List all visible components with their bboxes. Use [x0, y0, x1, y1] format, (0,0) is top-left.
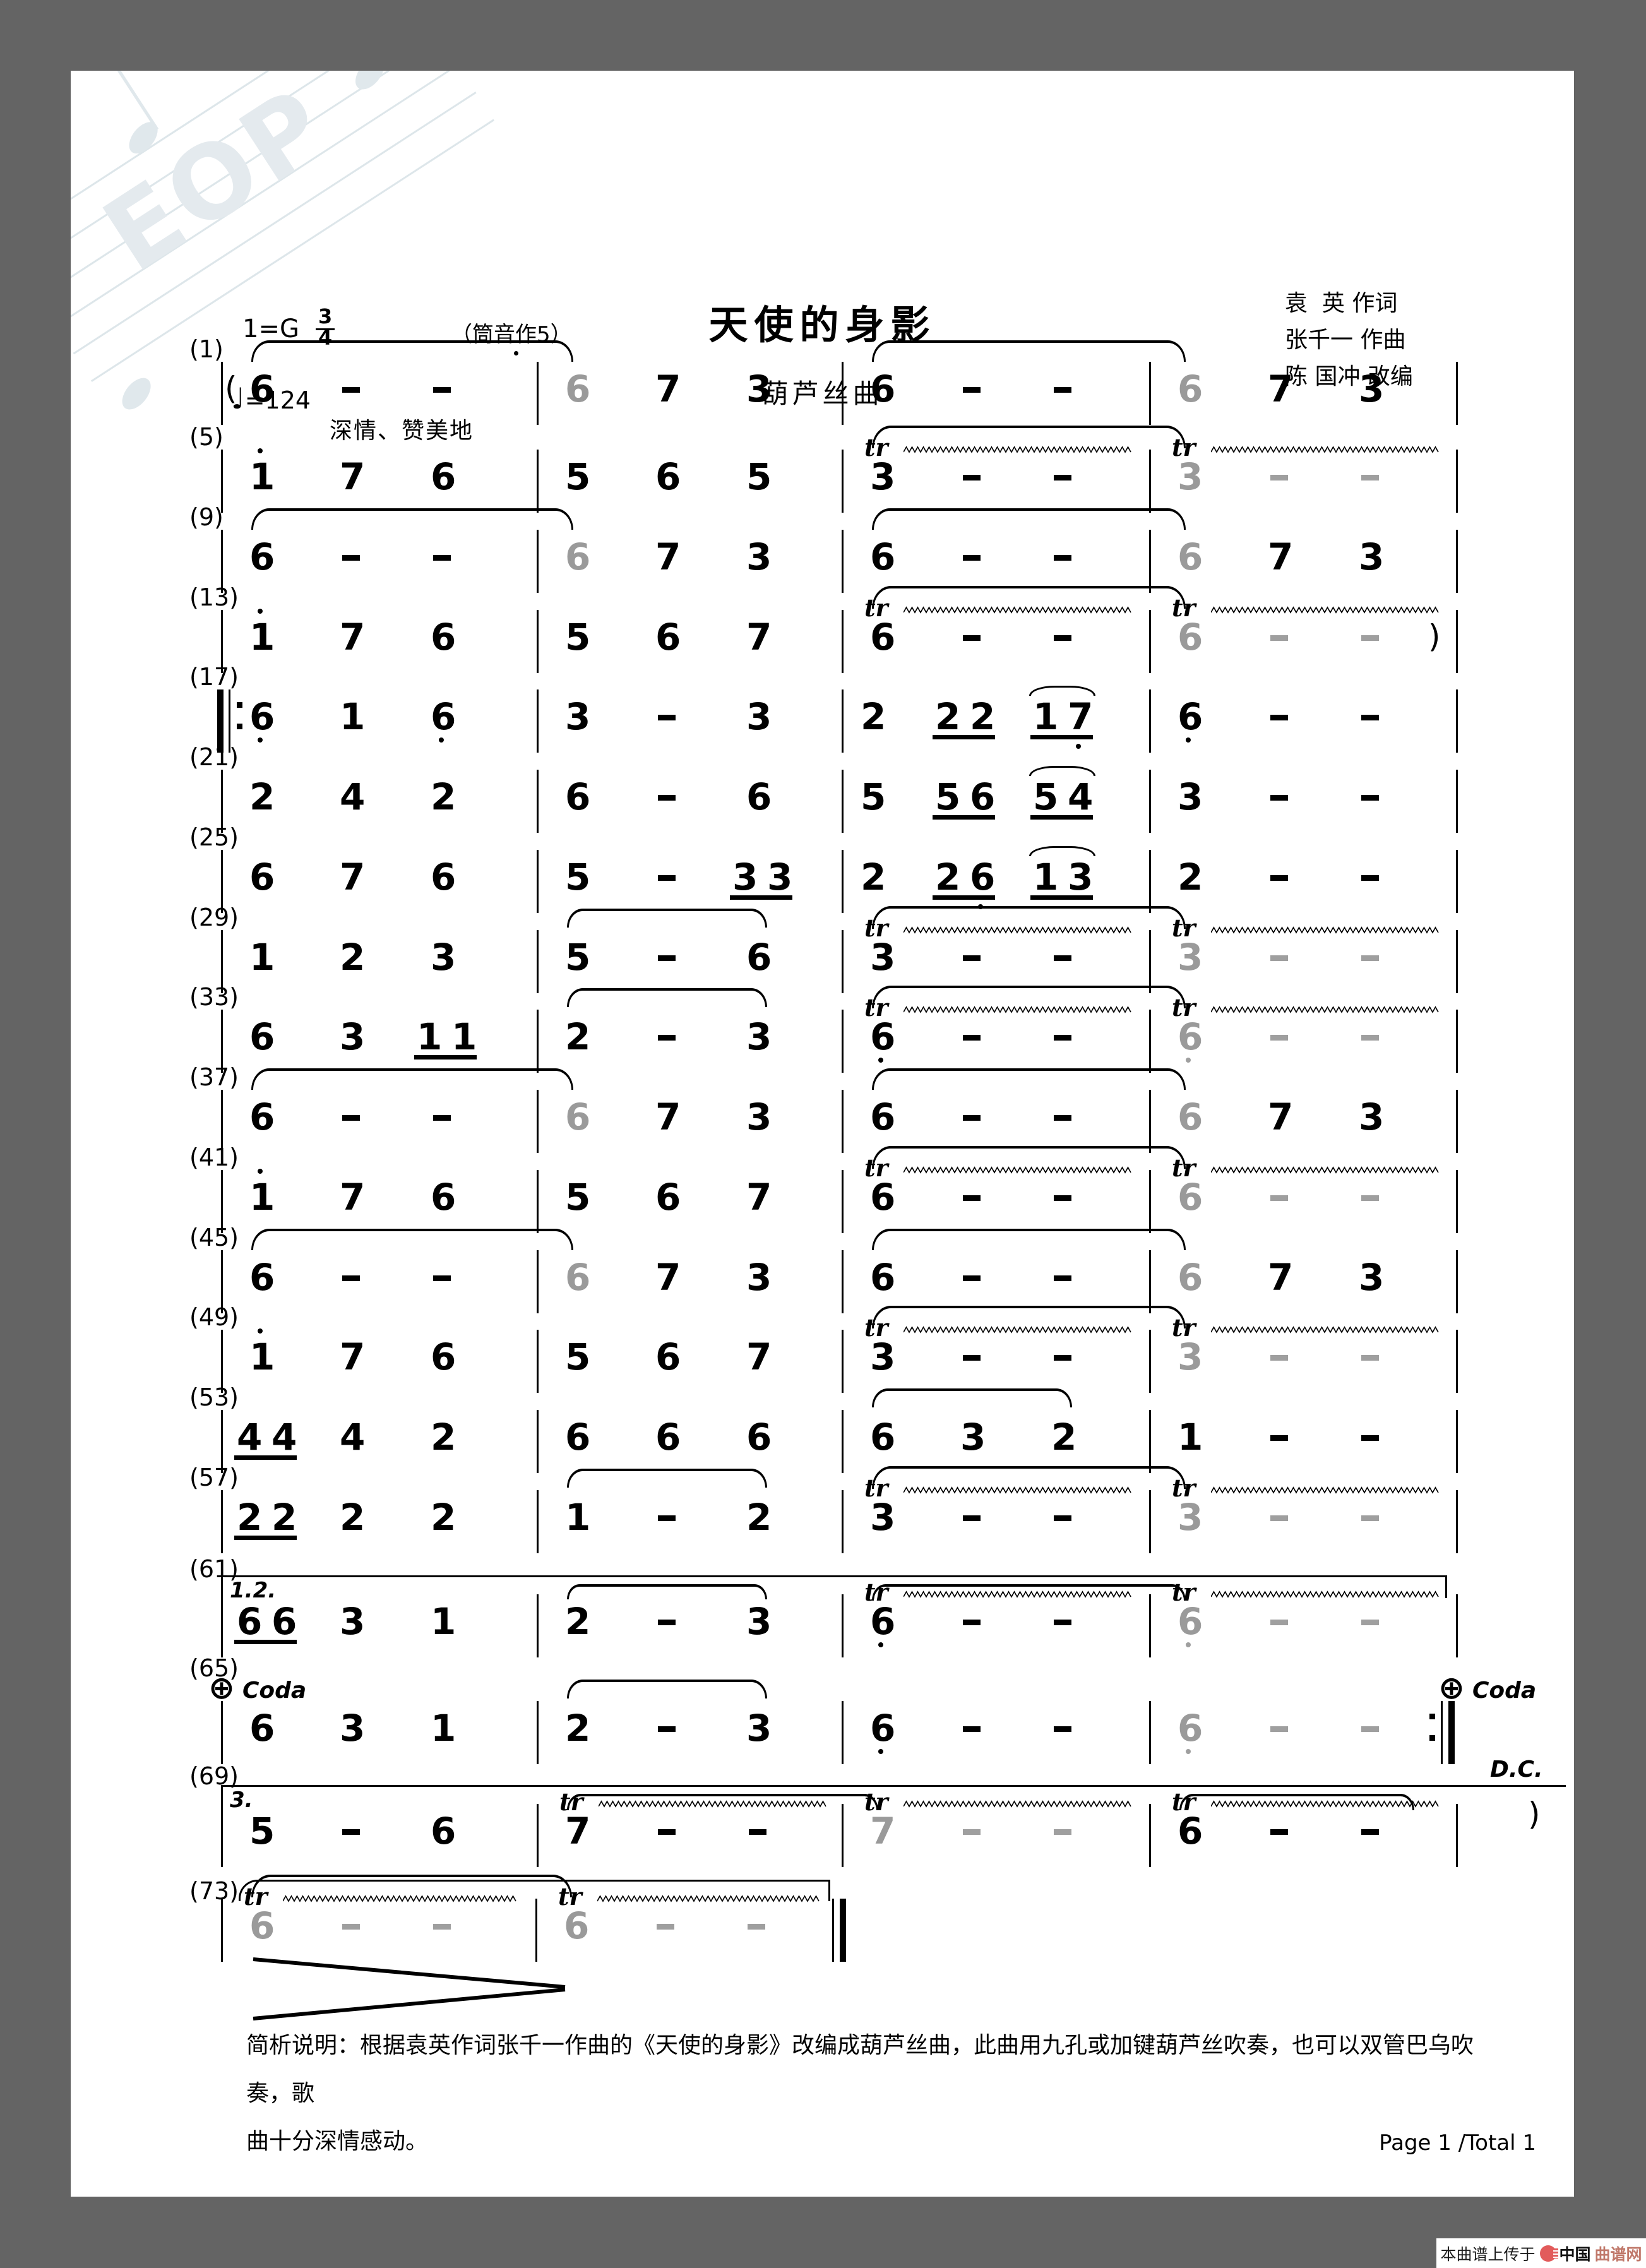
note: 6	[431, 619, 456, 655]
dash-rest	[963, 1275, 981, 1281]
volta-tick-right	[1445, 1575, 1447, 1598]
note: 6	[746, 779, 772, 815]
octave-dot-low	[878, 1058, 883, 1063]
measure-number-label: (49)	[189, 1303, 239, 1331]
note: 2	[1051, 1419, 1076, 1455]
note: 6	[655, 1339, 681, 1375]
dash-rest	[963, 1829, 981, 1835]
barline	[1456, 1010, 1458, 1073]
note: 3	[732, 859, 758, 895]
note: 7	[655, 371, 681, 407]
note: 2	[249, 779, 275, 815]
note: 6	[431, 1339, 456, 1375]
barline	[842, 1090, 844, 1153]
barline	[1456, 850, 1458, 913]
note: 7	[746, 619, 772, 655]
note: 6	[1178, 1099, 1203, 1135]
barline	[221, 1490, 223, 1553]
measure-number-label: (21)	[189, 743, 239, 771]
barline	[1456, 362, 1458, 425]
dash-rest	[658, 875, 676, 881]
octave-dot-high	[258, 1328, 263, 1334]
note: 4	[340, 779, 365, 815]
note: 1	[565, 1499, 590, 1536]
note: 7	[340, 619, 365, 655]
dash-rest	[342, 387, 360, 393]
note: 6	[655, 458, 681, 495]
eighth-beam	[414, 1055, 477, 1059]
note: 6	[249, 698, 275, 735]
coda-label: Coda	[242, 1680, 306, 1702]
eighth-beam	[933, 815, 995, 820]
dash-rest	[658, 1829, 676, 1835]
eighth-beam	[234, 1640, 297, 1644]
note: 1	[1033, 698, 1058, 735]
note: 1	[249, 1179, 275, 1215]
slur-arc	[872, 1466, 1186, 1489]
octave-dot-low	[258, 737, 263, 743]
dash-rest	[1054, 1195, 1071, 1201]
dash-rest	[963, 1035, 981, 1041]
note: 2	[431, 779, 456, 815]
note: 6	[870, 1018, 895, 1055]
note: 3	[1359, 539, 1384, 575]
dash-rest	[1270, 875, 1288, 881]
note: 3	[1178, 1339, 1203, 1375]
repeat-dot	[1429, 1735, 1435, 1741]
slur-arc	[251, 340, 573, 362]
slur-arc	[567, 1794, 878, 1810]
barline	[1149, 610, 1151, 673]
note: 1	[249, 1339, 275, 1375]
dash-rest	[1361, 1355, 1379, 1361]
eighth-beam	[234, 1455, 297, 1460]
barline	[842, 1170, 844, 1233]
dash-rest	[657, 1924, 674, 1930]
barline	[1149, 689, 1151, 753]
site-watermark: 本曲谱上传于 中国 曲谱网	[1436, 2238, 1646, 2268]
coda-label: Coda	[1472, 1680, 1536, 1702]
note: 6	[1178, 371, 1203, 407]
dash-rest	[1270, 1829, 1288, 1835]
note: 7	[746, 1339, 772, 1375]
page-number: Page 1 /Total 1	[1379, 2130, 1536, 2156]
octave-dot-high	[258, 448, 263, 453]
barline	[537, 1410, 539, 1473]
coda-icon: ⊕	[1438, 1672, 1465, 1704]
note: 3	[1068, 859, 1093, 895]
dash-rest	[1361, 1435, 1379, 1441]
dash-rest	[1054, 1620, 1071, 1625]
staff-line	[71, 71, 423, 272]
dash-rest	[963, 1195, 981, 1201]
barline	[842, 1701, 844, 1764]
measure-number-label: (33)	[189, 983, 239, 1011]
slur-arc	[251, 508, 573, 530]
dash-rest	[1361, 1726, 1379, 1732]
note-head-icon	[350, 71, 390, 95]
note: 6	[970, 859, 995, 895]
trill-wavy-line	[1211, 1589, 1441, 1601]
eighth-beam	[730, 895, 792, 900]
note: 6	[1178, 1603, 1203, 1640]
slur-arc	[567, 1584, 767, 1599]
dash-rest	[1054, 475, 1071, 480]
dash-rest	[1361, 1829, 1379, 1835]
barline	[842, 1330, 844, 1393]
barline	[1149, 1170, 1151, 1233]
note: 5	[565, 619, 590, 655]
site-logo-icon	[1540, 2245, 1556, 2262]
note: 3	[746, 1259, 772, 1296]
note: 6	[1178, 1813, 1203, 1849]
note: 3	[870, 458, 895, 495]
barline	[221, 1899, 223, 1962]
dash-rest	[1054, 1726, 1071, 1732]
dash-rest	[1361, 1195, 1379, 1201]
barline	[1456, 450, 1458, 513]
dash-rest	[963, 955, 981, 961]
slur-arc	[567, 988, 767, 1007]
note: 6	[870, 1259, 895, 1296]
measure-number-label: (13)	[189, 583, 239, 611]
barline	[1456, 1250, 1458, 1313]
dash-rest	[658, 955, 676, 961]
note: 6	[431, 458, 456, 495]
barline	[537, 1090, 539, 1153]
note: 3	[1359, 371, 1384, 407]
note: 5	[1033, 779, 1058, 815]
volta-label: 3.	[230, 1788, 253, 1813]
dash-rest	[658, 1035, 676, 1041]
barline	[1149, 1594, 1151, 1657]
dash-rest	[658, 1726, 676, 1732]
barline	[537, 1010, 539, 1073]
note: 5	[249, 1813, 275, 1849]
note: 6	[249, 859, 275, 895]
barline	[537, 1701, 539, 1764]
note: 7	[340, 1179, 365, 1215]
slur-arc	[872, 1306, 1186, 1328]
octave-dot-low	[1186, 737, 1191, 743]
note: 3	[1178, 939, 1203, 976]
barline	[1149, 1090, 1151, 1153]
note: 6	[870, 1710, 895, 1746]
note: 1	[417, 1018, 442, 1055]
analysis-note: 简析说明：根据袁英作词张千一作曲的《天使的身影》改编成葫芦丝曲，此曲用九孔或加键…	[246, 2022, 1477, 2166]
open-paren: (	[225, 369, 237, 407]
note: 2	[340, 939, 365, 976]
barline	[1149, 850, 1151, 913]
note: 2	[565, 1018, 590, 1055]
octave-dot-low	[878, 1642, 883, 1647]
barline	[1456, 1090, 1458, 1153]
note: 1	[249, 458, 275, 495]
trill-wavy-line	[1211, 1165, 1441, 1177]
barline	[1149, 1330, 1151, 1393]
note: 6	[1178, 1179, 1203, 1215]
barline	[842, 1250, 844, 1313]
note: 3	[1178, 779, 1203, 815]
octave-dot-high	[258, 1169, 263, 1174]
barline	[221, 362, 223, 425]
note: 3	[340, 1018, 365, 1055]
dash-rest	[1270, 1035, 1288, 1041]
dash-rest	[1054, 955, 1071, 961]
eighth-beam	[1030, 735, 1093, 739]
note: 3	[1359, 1099, 1384, 1135]
coda-icon: ⊕	[208, 1672, 235, 1704]
slur-arc	[1179, 1794, 1414, 1810]
note: 7	[340, 458, 365, 495]
note: 3	[565, 698, 590, 735]
barline	[537, 450, 539, 513]
barline	[1149, 1010, 1151, 1073]
eighth-beam	[1030, 895, 1093, 900]
dash-rest	[1054, 1829, 1071, 1835]
eighth-beam	[1030, 815, 1093, 820]
note: 6	[870, 1419, 895, 1455]
dash-rest	[1270, 955, 1288, 961]
slur-arc	[567, 1680, 767, 1698]
decrescendo-hairpin	[249, 1954, 578, 2026]
note: 3	[870, 939, 895, 976]
note: 7	[340, 859, 365, 895]
slur-arc	[872, 340, 1186, 362]
dash-rest	[1270, 1620, 1288, 1625]
dash-rest	[658, 1515, 676, 1521]
repeat-dot	[1429, 1714, 1435, 1719]
barline	[537, 362, 539, 425]
slur-arc	[872, 1068, 1186, 1090]
note: 7	[746, 1179, 772, 1215]
note: 6	[870, 619, 895, 655]
sheet-music-page: EOP 天使的身影 葫芦丝曲 1=G34 （筒音作5） ♩=124 深情、赞美地…	[71, 71, 1574, 2197]
dash-rest	[1270, 475, 1288, 480]
measure-number-label: (9)	[189, 503, 224, 531]
note: 3	[746, 1099, 772, 1135]
trill-wavy-line	[1211, 925, 1441, 937]
dash-rest	[433, 1115, 451, 1121]
note: 4	[340, 1419, 365, 1455]
slur-arc	[872, 426, 1186, 448]
note: 6	[1178, 1710, 1203, 1746]
note: 6	[870, 371, 895, 407]
note: 6	[870, 539, 895, 575]
note: 5	[935, 779, 960, 815]
octave-dot-low	[1186, 1642, 1191, 1647]
note: 6	[249, 1710, 275, 1746]
barline	[1149, 1701, 1151, 1764]
dash-rest	[1361, 875, 1379, 881]
note: 6	[237, 1603, 262, 1640]
trill-wavy-line	[1211, 445, 1441, 457]
slur-arc	[567, 909, 767, 928]
dash-rest	[433, 1924, 451, 1930]
note: 2	[935, 698, 960, 735]
note: 7	[655, 1259, 681, 1296]
barline	[1456, 770, 1458, 833]
dash-rest	[748, 1924, 765, 1930]
note: 3	[746, 371, 772, 407]
dash-rest	[1361, 795, 1379, 801]
dash-rest	[1361, 1515, 1379, 1521]
screenshot-root: { "colors":{"canvas_bg":"#646464","page_…	[0, 0, 1646, 2268]
barline	[842, 1490, 844, 1553]
site-brand-black: 中国	[1559, 2242, 1590, 2265]
dash-rest	[963, 1726, 981, 1732]
credits: 袁 英 作词 张千一 作曲 陈 国冲 改编	[1285, 285, 1413, 395]
repeat-dot	[237, 724, 242, 729]
note: 1	[249, 619, 275, 655]
barline	[537, 1330, 539, 1393]
octave-dot-low	[1186, 1749, 1191, 1754]
barline	[842, 770, 844, 833]
dc-marking: D.C.	[1490, 1757, 1543, 1782]
staff-line	[71, 71, 441, 299]
octave-dot-high	[258, 609, 263, 614]
note: 6	[249, 539, 275, 575]
barline	[537, 530, 539, 593]
note: 1	[1033, 859, 1058, 895]
measure-number-label: (57)	[189, 1464, 239, 1491]
note: 4	[237, 1419, 262, 1455]
measure-number-label: (45)	[189, 1224, 239, 1251]
dash-rest	[1361, 475, 1379, 480]
key-text: 1=G	[242, 314, 299, 343]
measure-number-label: (1)	[189, 335, 224, 363]
barline	[1149, 1804, 1151, 1867]
note: 7	[870, 1813, 895, 1849]
note: 6	[565, 1419, 590, 1455]
barline	[1456, 1804, 1458, 1867]
tie-arc	[1029, 766, 1095, 776]
note: 3	[870, 1339, 895, 1375]
dash-rest	[1361, 1620, 1379, 1625]
note: 3	[960, 1419, 986, 1455]
dash-rest	[1270, 1195, 1288, 1201]
analysis-line-1: 简析说明：根据袁英作词张千一作曲的《天使的身影》改编成葫芦丝曲，此曲用九孔或加键…	[246, 2032, 1474, 2106]
note: 7	[1268, 539, 1293, 575]
dash-rest	[963, 1115, 981, 1121]
note: 7	[1068, 698, 1093, 735]
note: 2	[861, 698, 886, 735]
note: 3	[1178, 1499, 1203, 1536]
final-thick-bar	[840, 1899, 846, 1962]
octave-dot-low	[1186, 1058, 1191, 1063]
note: 3	[746, 698, 772, 735]
note: 6	[249, 1018, 275, 1055]
slur-arc	[251, 1068, 573, 1090]
note: 5	[565, 1339, 590, 1375]
tie-arc	[1029, 846, 1095, 856]
dash-rest	[963, 387, 981, 393]
phrase-bracket	[239, 1880, 830, 1901]
barline	[842, 1594, 844, 1657]
note: 6	[431, 1179, 456, 1215]
dash-rest	[1361, 1035, 1379, 1041]
dash-rest	[1270, 715, 1288, 720]
note: 6	[565, 1259, 590, 1296]
dash-rest	[1054, 1355, 1071, 1361]
dash-rest	[1270, 1435, 1288, 1441]
measure-number-label: (37)	[189, 1063, 239, 1091]
barline	[1456, 1594, 1458, 1657]
barline	[842, 689, 844, 753]
trill-wavy-line	[1211, 1325, 1441, 1337]
barline	[1456, 1170, 1458, 1233]
barline	[1149, 930, 1151, 993]
barline	[537, 1490, 539, 1553]
expression-marking: 深情、赞美地	[330, 412, 474, 445]
note: 1	[340, 698, 365, 735]
barline	[1456, 930, 1458, 993]
barline	[842, 530, 844, 593]
barline	[537, 850, 539, 913]
note: 6	[1178, 539, 1203, 575]
dash-rest	[1361, 715, 1379, 720]
trill-wavy-line	[904, 1799, 1134, 1811]
dash-rest	[1054, 1115, 1071, 1121]
barline	[221, 1701, 223, 1764]
note: 5	[565, 939, 590, 976]
measure-number-label: (41)	[189, 1143, 239, 1171]
slur-arc	[872, 986, 1186, 1008]
eighth-beam	[933, 895, 995, 900]
dash-rest	[963, 1515, 981, 1521]
barline	[842, 1804, 844, 1867]
staff-line	[71, 71, 405, 244]
barline	[842, 610, 844, 673]
barline	[842, 930, 844, 993]
barline	[537, 770, 539, 833]
barline	[1456, 610, 1458, 673]
slur-arc	[872, 586, 1186, 609]
note: 3	[431, 939, 456, 976]
barline	[842, 450, 844, 513]
note: 7	[1268, 1099, 1293, 1135]
note: 2	[861, 859, 886, 895]
note: 3	[746, 1603, 772, 1640]
note: 6	[1178, 619, 1203, 655]
octave-dot-low	[878, 1749, 883, 1754]
barline	[842, 1010, 844, 1073]
barline	[842, 1410, 844, 1473]
analysis-line-2: 曲十分深情感动。	[246, 2128, 428, 2154]
note: 5	[565, 859, 590, 895]
slur-arc	[251, 1229, 573, 1250]
note: 7	[1268, 1259, 1293, 1296]
dash-rest	[963, 555, 981, 561]
dash-rest	[433, 1275, 451, 1281]
site-watermark-text: 本曲谱上传于	[1440, 2242, 1535, 2265]
dash-rest	[1054, 1515, 1071, 1521]
note: 4	[1068, 779, 1093, 815]
dash-rest	[963, 1620, 981, 1625]
dash-rest	[1270, 795, 1288, 801]
note: 1	[451, 1018, 477, 1055]
barline	[537, 610, 539, 673]
note: 4	[271, 1419, 297, 1455]
barline	[1149, 450, 1151, 513]
dash-rest	[342, 555, 360, 561]
note: 3	[340, 1710, 365, 1746]
dash-rest	[749, 1829, 766, 1835]
dash-rest	[1361, 635, 1379, 641]
volta-line	[221, 1575, 1447, 1577]
note: 3	[870, 1499, 895, 1536]
dash-rest	[342, 1924, 360, 1930]
